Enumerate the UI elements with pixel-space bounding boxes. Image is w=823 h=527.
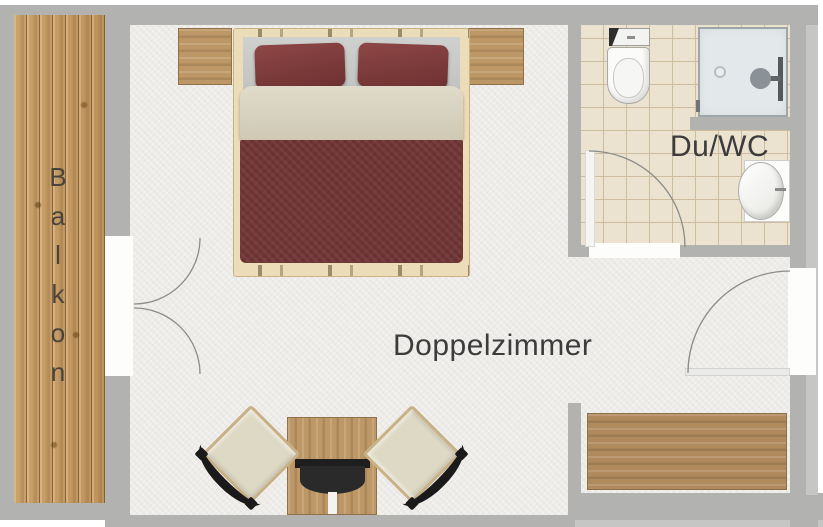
shower-door-handle (696, 100, 700, 112)
wall-bathroom-partition (568, 25, 581, 257)
bathroom-label: Du/WC (670, 130, 769, 164)
nightstand-left (178, 28, 232, 85)
balcony-door-opening (105, 236, 133, 376)
tv (293, 459, 372, 514)
toilet-bowl (607, 47, 650, 104)
shower-drain (714, 66, 726, 78)
wall-balcony-upper (105, 15, 130, 237)
balcony-label: Balkon (42, 162, 73, 396)
wall-top (105, 5, 818, 25)
sideboard (587, 413, 787, 490)
shower-tray (698, 27, 788, 117)
toilet (606, 27, 652, 106)
tv-stand-stem (328, 492, 337, 514)
pillow-right (357, 42, 448, 89)
floor-plan: Balkon Doppelzimmer Du/WC (0, 0, 823, 527)
bedroom-label: Doppelzimmer (393, 329, 592, 363)
bathroom-door-opening (589, 243, 680, 258)
bathroom-door-leaf (585, 150, 595, 247)
wall-bottom-right-outer (575, 520, 823, 527)
wall-bottom-balcony (0, 503, 118, 520)
wall-right-outer (806, 25, 818, 495)
toilet-flush-button (627, 36, 635, 39)
sink-faucet (775, 188, 786, 191)
wall-stub-bottom (568, 403, 581, 515)
bed-blanket (240, 140, 463, 263)
double-bed (233, 28, 470, 277)
wall-left (0, 5, 14, 520)
nightstand-right (468, 28, 524, 85)
toilet-seat-opening (613, 58, 644, 98)
wall-balcony-lower (105, 375, 130, 515)
wall-top-balcony (0, 5, 112, 15)
tv-base (300, 466, 365, 494)
sink-basin (738, 162, 784, 220)
entry-door-opening (788, 268, 816, 375)
bed-sheet-fold (240, 86, 463, 141)
sink (738, 158, 790, 224)
shower-head (750, 68, 771, 89)
entry-door-leaf (685, 368, 790, 376)
shower (698, 27, 790, 119)
pillow-left (254, 42, 345, 89)
